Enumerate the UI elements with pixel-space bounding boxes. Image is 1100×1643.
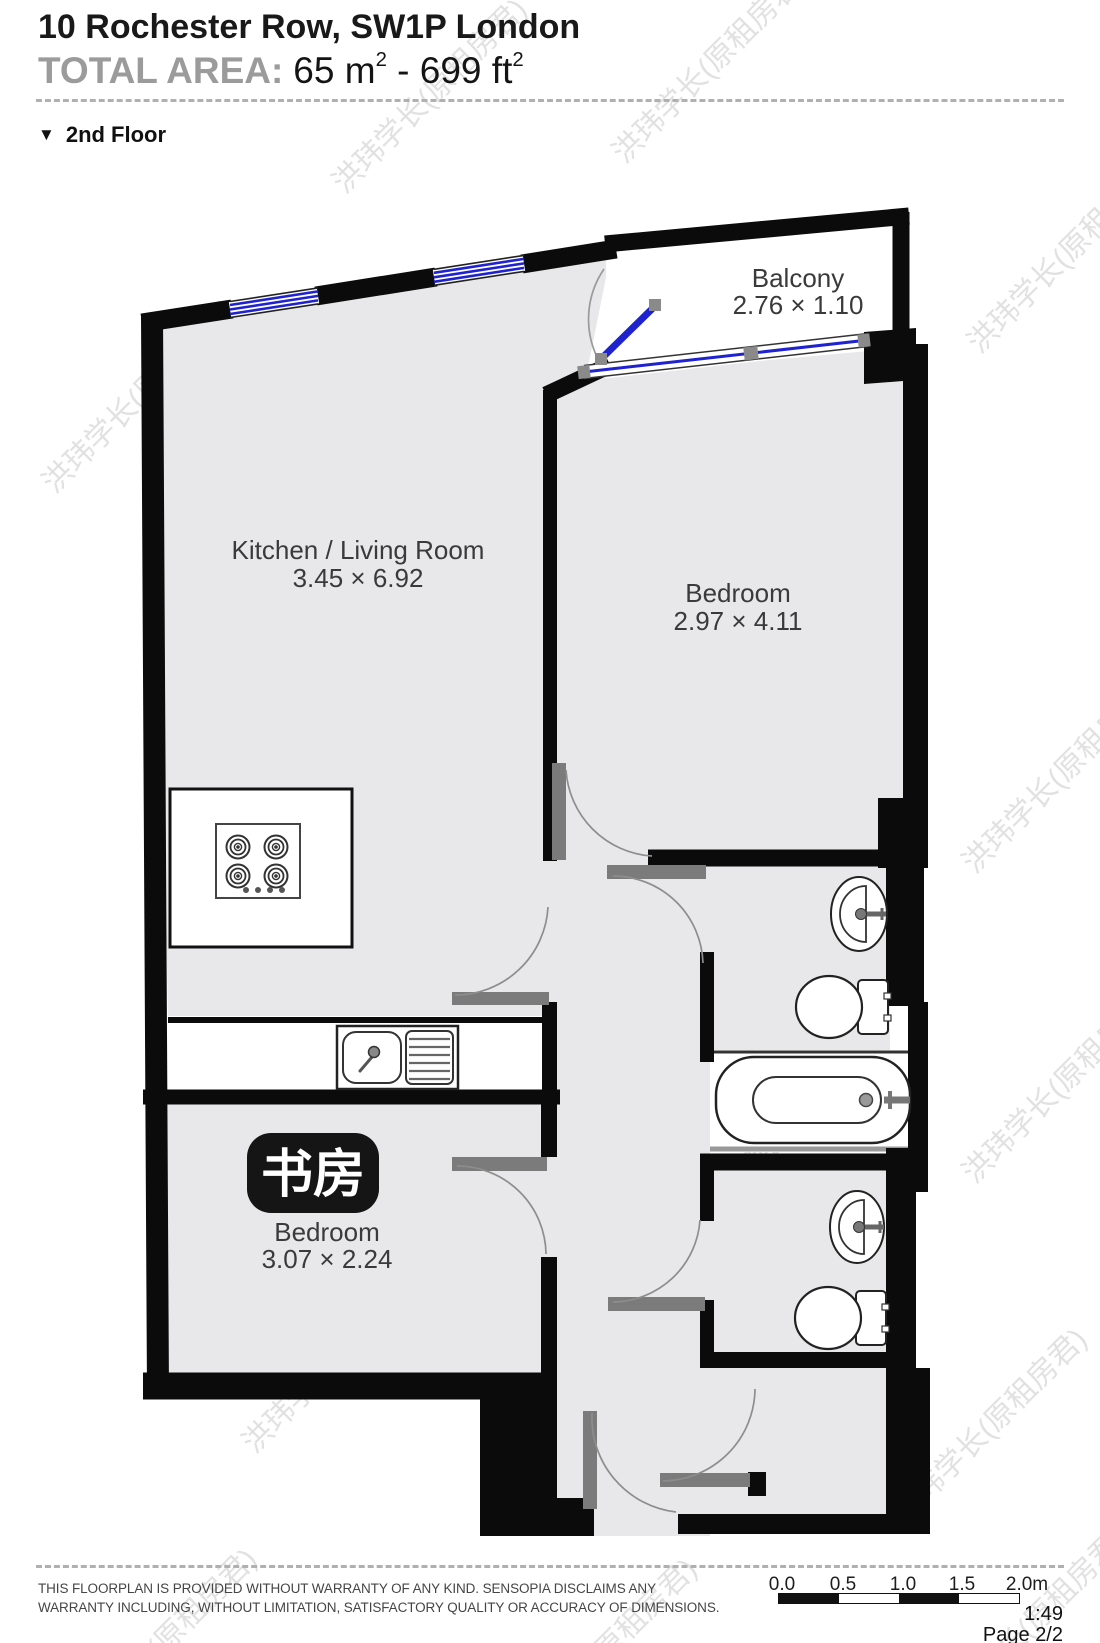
floor-heading: ▼2nd Floor — [38, 122, 166, 148]
bedroom-label: Bedroom — [685, 578, 791, 608]
bathroom1-sink — [831, 877, 887, 951]
bedroom2-dims: 3.07 × 2.24 — [262, 1244, 393, 1274]
header-divider — [36, 99, 1064, 102]
bathroom2-toilet — [795, 1287, 889, 1349]
total-area-value: 65 m2 - 699 ft2 — [293, 50, 523, 91]
scale-bar-segment — [779, 1594, 839, 1603]
total-area-line: TOTAL AREA:65 m2 - 699 ft2 — [38, 50, 524, 92]
floor-label: 2nd Floor — [66, 122, 166, 147]
floorplan-page: 洪玮学长(原租房君) 洪玮学长(原租房君) 洪玮学长(原租房君) 洪玮学长(原租… — [0, 0, 1100, 1643]
page-title: 10 Rochester Row, SW1P London — [38, 8, 580, 47]
balcony-label: Balcony — [752, 263, 845, 293]
kitchen-label: Kitchen / Living Room — [232, 535, 485, 565]
triangle-down-icon: ▼ — [38, 125, 55, 144]
balcony-dims: 2.76 × 1.10 — [733, 290, 864, 320]
scale-bar-segment — [839, 1594, 899, 1603]
scale-ratio: 1:49 — [778, 1603, 1063, 1626]
footer-divider — [36, 1565, 1064, 1568]
bathroom2-sink — [830, 1191, 884, 1263]
bedroom2-label: Bedroom — [274, 1217, 380, 1247]
total-area-label: TOTAL AREA: — [38, 50, 283, 91]
scale-bar-segment — [959, 1594, 1019, 1603]
hob-counter — [170, 789, 352, 947]
study-badge-text: 书房 — [261, 1146, 365, 1204]
disclaimer-line2: WARRANTY INCLUDING, WITHOUT LIMITATION, … — [38, 1600, 719, 1615]
bathtub — [716, 1057, 910, 1143]
disclaimer-line1: THIS FLOORPLAN IS PROVIDED WITHOUT WARRA… — [38, 1581, 656, 1596]
kitchen-sink — [337, 1026, 458, 1089]
scale-bar-segment — [899, 1594, 959, 1603]
kitchen-dims: 3.45 × 6.92 — [293, 563, 424, 593]
page-number: Page 2/2 — [778, 1624, 1063, 1643]
floorplan-drawing: Kitchen / Living Room 3.45 × 6.92 Bedroo… — [0, 0, 1100, 1643]
bathroom1-toilet — [796, 976, 891, 1038]
bedroom-dims: 2.97 × 4.11 — [674, 606, 803, 636]
hob — [216, 824, 300, 898]
